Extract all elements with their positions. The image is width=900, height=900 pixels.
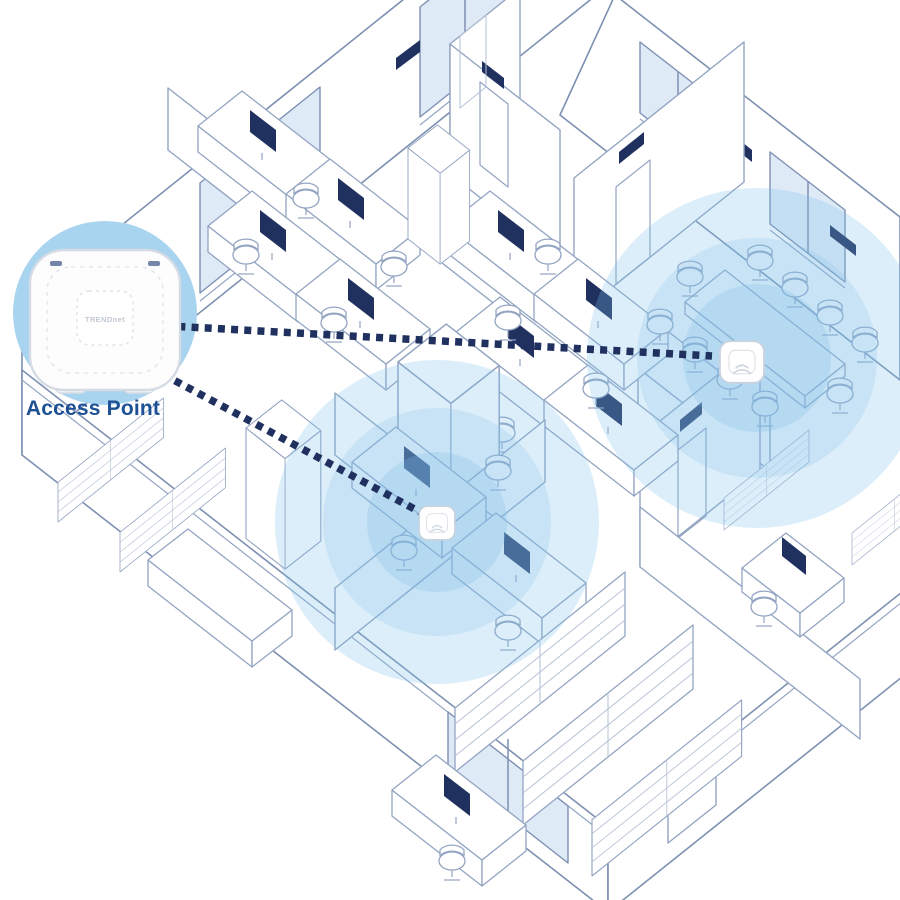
office-chair — [439, 845, 465, 880]
ceiling-ap-meeting — [419, 506, 455, 540]
ceiling-ap-conference — [720, 341, 764, 383]
device-led — [148, 261, 160, 266]
office-coverage-diagram: TRENDnet Access Point — [0, 0, 900, 900]
device-led — [50, 261, 62, 266]
access-point-device: TRENDnet — [30, 250, 180, 393]
access-point-label: Access Point — [26, 397, 160, 420]
device-brand-logo: TRENDnet — [85, 315, 125, 324]
cabinet — [408, 125, 470, 264]
